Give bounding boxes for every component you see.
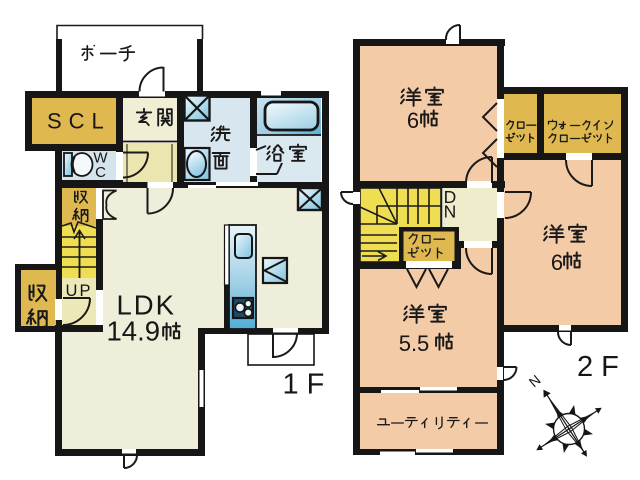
svg-text:UP: UP — [66, 282, 93, 300]
svg-text:SCL: SCL — [47, 109, 111, 134]
svg-text:C: C — [95, 164, 106, 181]
svg-text:N: N — [526, 372, 544, 391]
svg-text:14.9: 14.9 — [107, 316, 161, 347]
svg-text:2 F: 2 F — [577, 351, 619, 383]
svg-text:N: N — [444, 202, 457, 222]
svg-text:6: 6 — [407, 108, 419, 133]
svg-text:1 F: 1 F — [283, 369, 325, 401]
svg-text:5.5: 5.5 — [399, 331, 430, 356]
svg-text:6: 6 — [551, 250, 563, 275]
